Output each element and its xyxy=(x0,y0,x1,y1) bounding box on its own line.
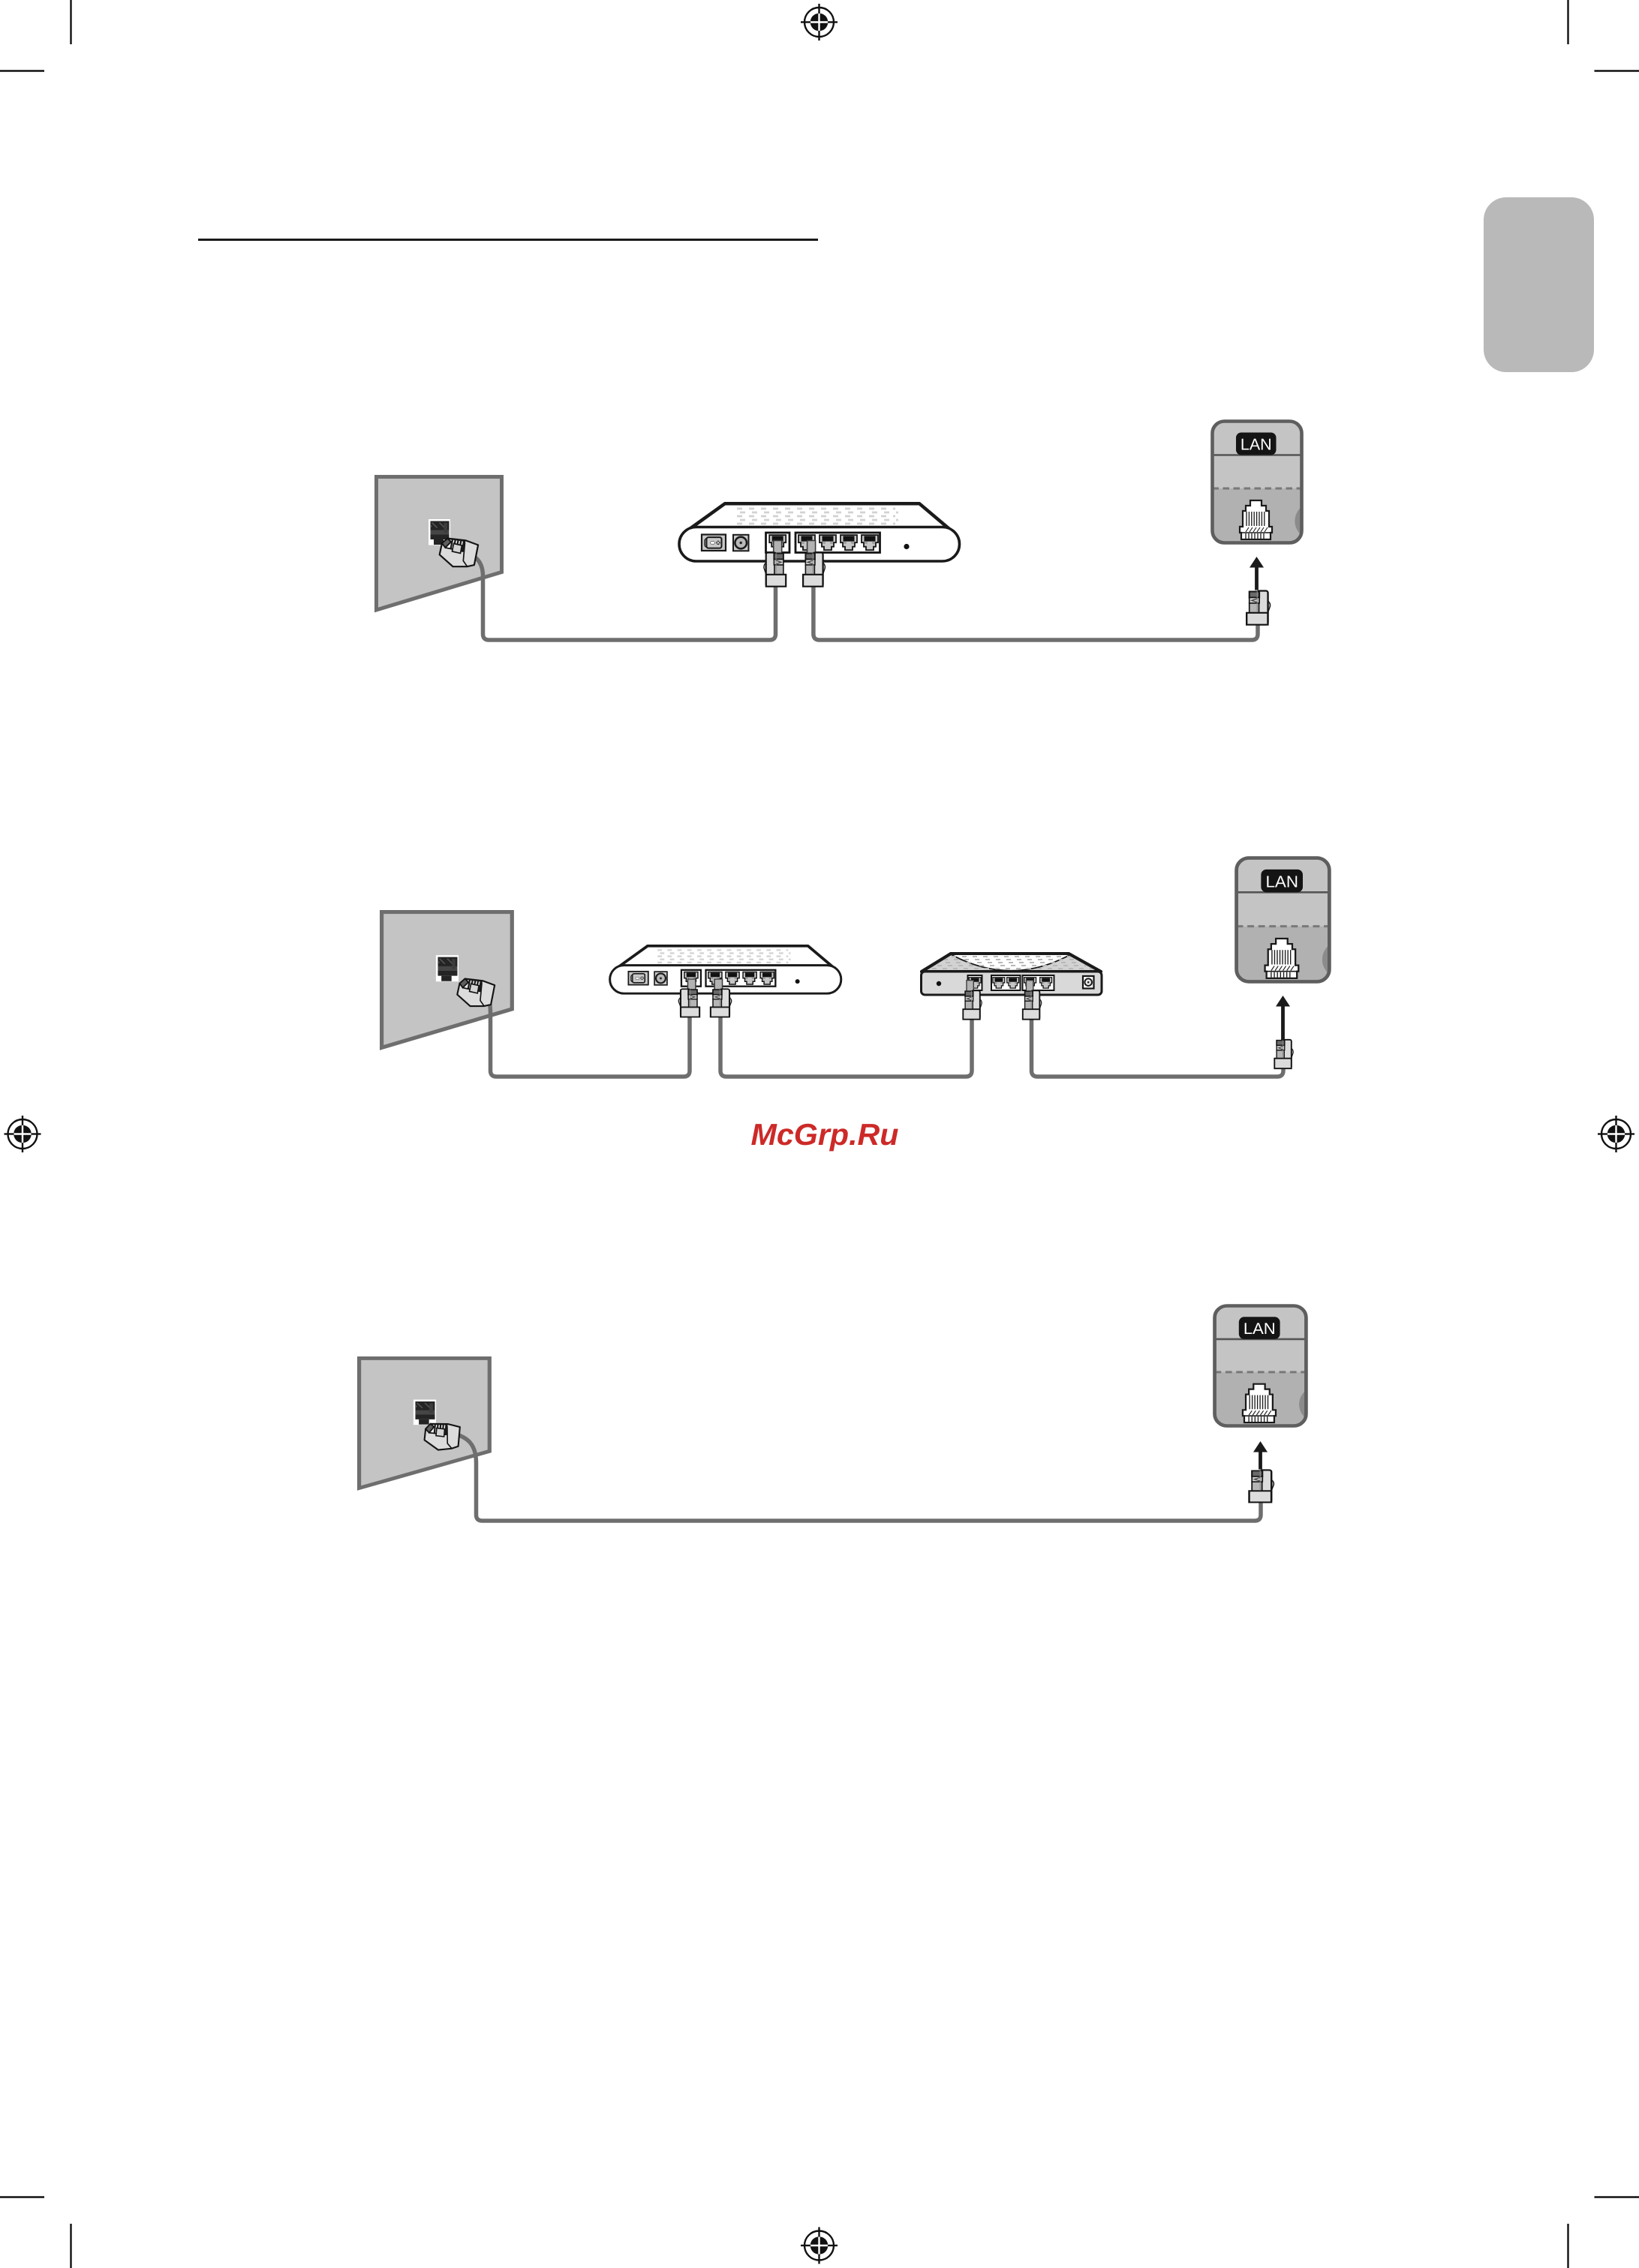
svg-text:McGrp.Ru: McGrp.Ru xyxy=(751,1117,899,1152)
